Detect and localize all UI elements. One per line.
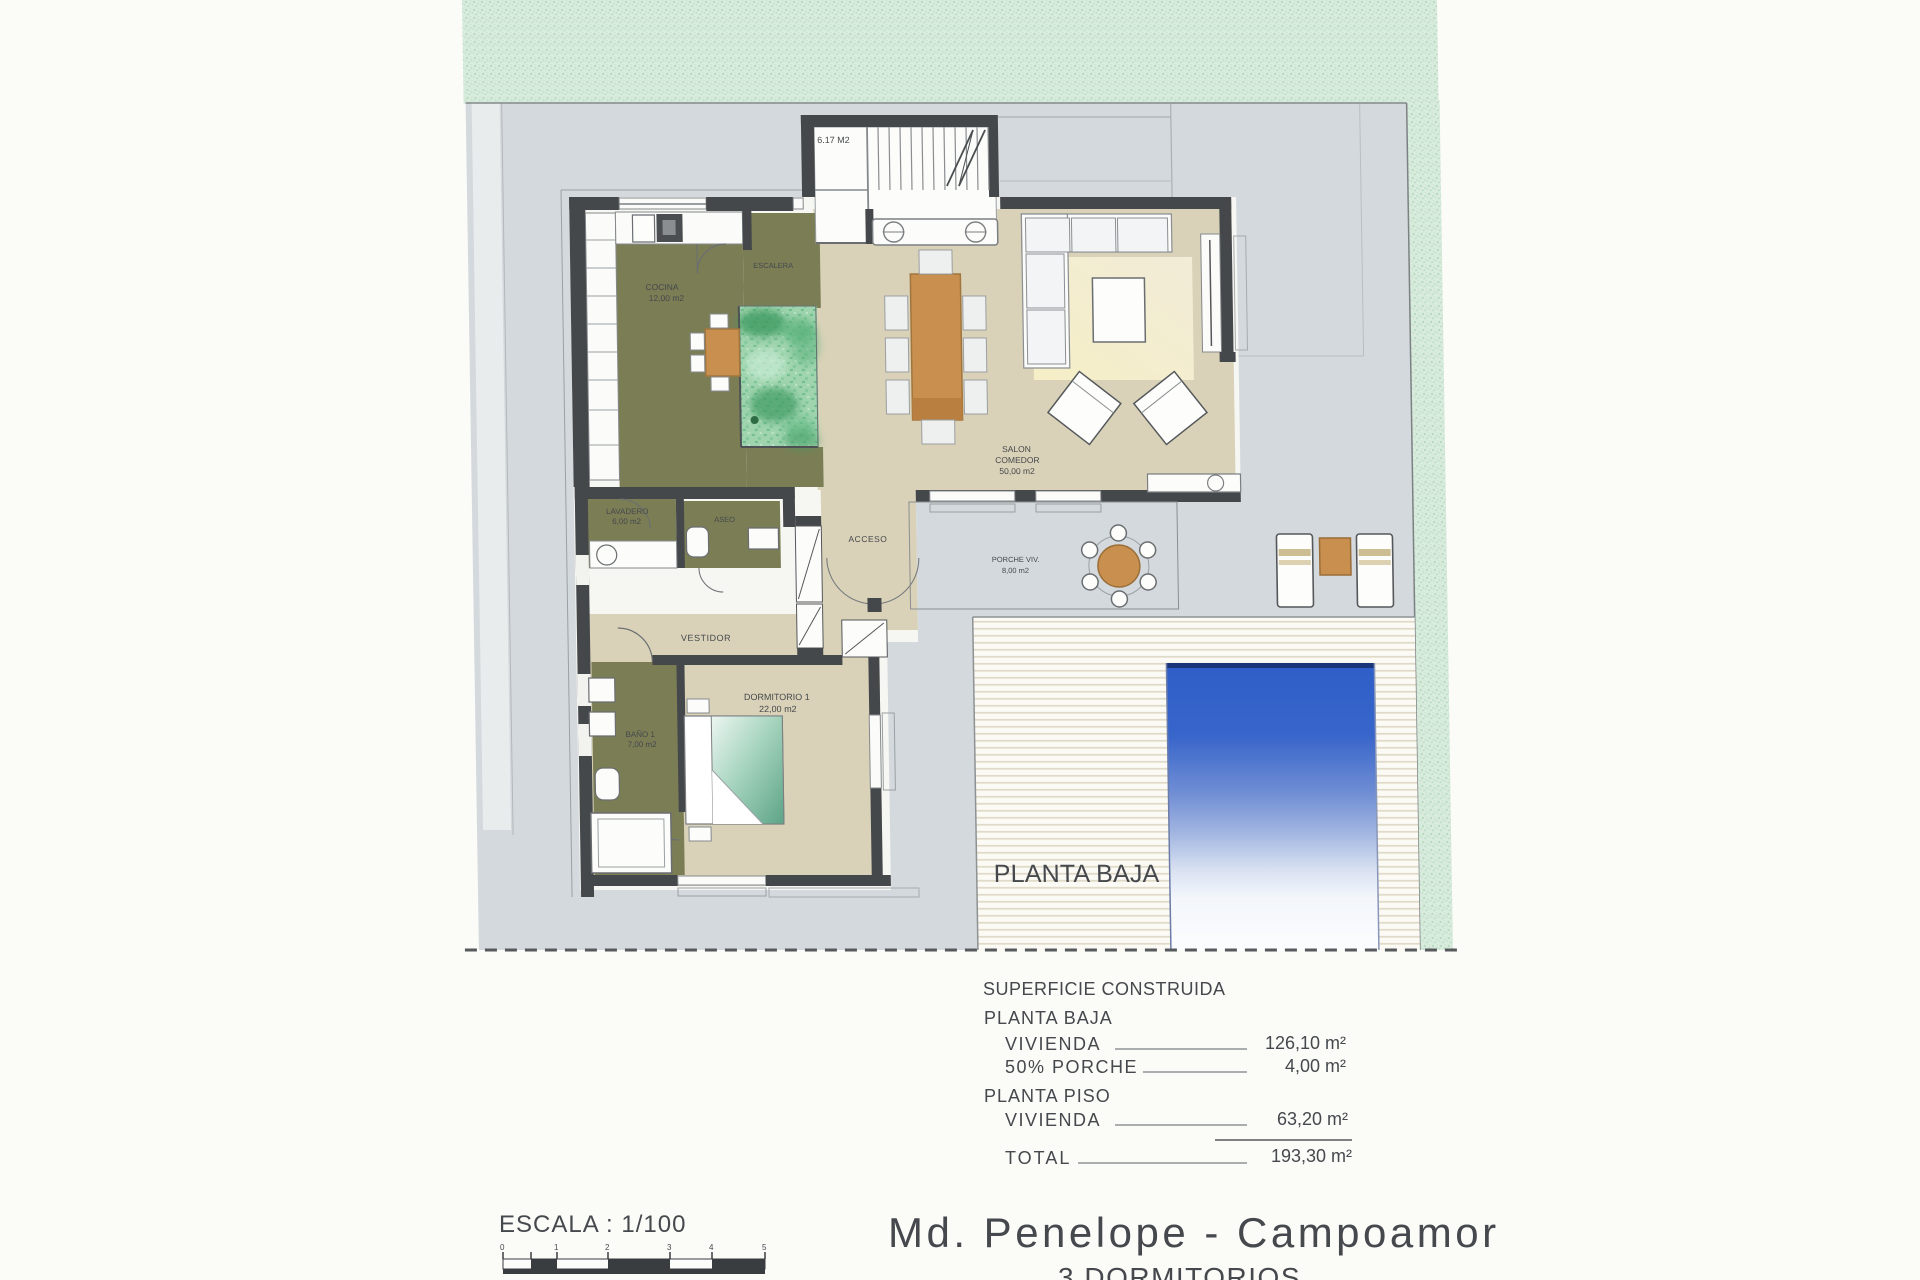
svg-text:COMEDOR: COMEDOR xyxy=(995,455,1040,465)
svg-text:TOTAL: TOTAL xyxy=(1005,1148,1071,1168)
svg-text:PLANTA BAJA: PLANTA BAJA xyxy=(994,860,1160,888)
svg-text:ESCALERA: ESCALERA xyxy=(753,261,793,270)
svg-text:22,00 m2: 22,00 m2 xyxy=(759,704,797,714)
svg-text:SALON: SALON xyxy=(1002,444,1031,454)
svg-text:VIVIENDA: VIVIENDA xyxy=(1005,1110,1101,1130)
svg-text:6.17 M2: 6.17 M2 xyxy=(817,135,850,145)
svg-text:0: 0 xyxy=(500,1243,505,1252)
svg-text:4: 4 xyxy=(709,1243,714,1252)
svg-text:BAÑO 1: BAÑO 1 xyxy=(625,730,655,739)
svg-text:193,30 m²: 193,30 m² xyxy=(1271,1146,1352,1166)
svg-text:4,00 m²: 4,00 m² xyxy=(1285,1056,1346,1076)
svg-text:7,00 m2: 7,00 m2 xyxy=(628,740,658,749)
svg-text:PLANTA BAJA: PLANTA BAJA xyxy=(984,1008,1113,1028)
svg-text:50% PORCHE: 50% PORCHE xyxy=(1005,1057,1138,1077)
svg-text:ESCALA : 1/100: ESCALA : 1/100 xyxy=(499,1211,686,1238)
svg-text:50,00 m2: 50,00 m2 xyxy=(999,466,1035,476)
svg-text:DORMITORIO 1: DORMITORIO 1 xyxy=(744,692,810,702)
svg-text:LAVADERO: LAVADERO xyxy=(606,507,649,516)
svg-text:PORCHE VIV.: PORCHE VIV. xyxy=(992,555,1040,564)
svg-text:12,00 m2: 12,00 m2 xyxy=(649,293,685,303)
svg-text:COCINA: COCINA xyxy=(645,282,679,292)
svg-text:3 DORMITORIOS: 3 DORMITORIOS xyxy=(1058,1262,1301,1280)
svg-text:ACCESO: ACCESO xyxy=(848,534,887,544)
svg-text:8,00 m2: 8,00 m2 xyxy=(1002,566,1029,575)
svg-text:3: 3 xyxy=(667,1243,672,1252)
svg-text:63,20 m²: 63,20 m² xyxy=(1277,1109,1348,1129)
svg-text:2: 2 xyxy=(605,1243,610,1252)
svg-text:1: 1 xyxy=(554,1243,559,1252)
svg-text:6,00 m2: 6,00 m2 xyxy=(612,517,642,526)
svg-text:SUPERFICIE CONSTRUIDA: SUPERFICIE CONSTRUIDA xyxy=(983,979,1226,999)
svg-text:Md. Penelope - Campoamor: Md. Penelope - Campoamor xyxy=(888,1209,1500,1256)
svg-text:126,10 m²: 126,10 m² xyxy=(1265,1033,1346,1053)
svg-text:VESTIDOR: VESTIDOR xyxy=(681,633,731,643)
svg-text:5: 5 xyxy=(762,1243,767,1252)
svg-text:ASEO: ASEO xyxy=(714,515,735,524)
svg-text:PLANTA PISO: PLANTA PISO xyxy=(984,1086,1111,1106)
svg-text:VIVIENDA: VIVIENDA xyxy=(1005,1034,1101,1054)
